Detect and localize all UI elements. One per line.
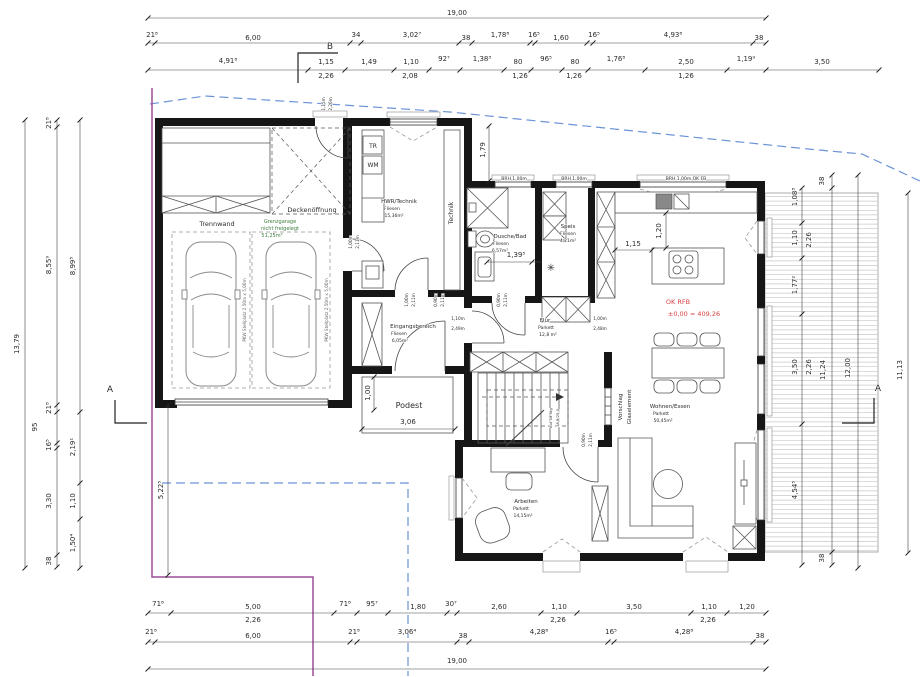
room-label: Podest bbox=[396, 401, 423, 410]
dim-label: 16⁵ bbox=[45, 439, 53, 451]
parking-label: PKW Stellplatz 2,50m x 5,00m bbox=[324, 278, 329, 341]
chair bbox=[677, 333, 697, 346]
dim-label: 95 bbox=[31, 423, 39, 432]
kitchen bbox=[597, 192, 757, 298]
dim-label: 21⁸ bbox=[45, 117, 53, 129]
dim-label: 92⁷ bbox=[438, 55, 450, 63]
dim-label: 1,10 bbox=[701, 603, 717, 611]
opening-label: 2,11m bbox=[355, 235, 360, 248]
dim-label: 1,78⁸ bbox=[491, 31, 510, 39]
window bbox=[758, 430, 764, 520]
wall-segment bbox=[598, 440, 612, 447]
door-step bbox=[543, 561, 580, 572]
armchair bbox=[472, 504, 512, 546]
dim-label: 1,10 bbox=[551, 603, 567, 611]
chair bbox=[654, 333, 674, 346]
dim-label: 71⁸ bbox=[339, 600, 351, 608]
toilet-tank bbox=[468, 231, 476, 247]
room-label: Eingangsbereich bbox=[390, 324, 436, 330]
dim-label: 13,79 bbox=[13, 334, 21, 354]
window-swing bbox=[390, 127, 437, 141]
window-sill bbox=[449, 476, 454, 520]
room-label: Parkett bbox=[513, 506, 529, 512]
room-label: Parkett bbox=[538, 325, 554, 331]
room-label: Fliesen bbox=[493, 241, 509, 247]
dim-label: 80 bbox=[571, 58, 580, 66]
opening-label: 1,00m bbox=[593, 316, 606, 321]
wall-segment bbox=[757, 181, 765, 221]
dim-label: 3,30 bbox=[45, 493, 53, 509]
dim-label: 4,28⁸ bbox=[530, 628, 549, 636]
dim-label: 5,00 bbox=[245, 603, 261, 611]
window bbox=[758, 364, 764, 414]
dim-label: 21⁸ bbox=[145, 628, 157, 636]
office bbox=[472, 448, 608, 546]
room-label: Fliesen bbox=[384, 206, 400, 212]
room-label: 51,25m² bbox=[261, 233, 282, 239]
dim-label: 1,20 bbox=[739, 603, 755, 611]
window bbox=[495, 182, 531, 187]
terrace-door-swing bbox=[683, 537, 728, 552]
room-label: 4,21m² bbox=[560, 238, 576, 244]
room-label: Wohnen/Essen bbox=[650, 404, 691, 410]
coffee-table bbox=[654, 470, 683, 499]
window bbox=[758, 308, 764, 356]
dim-label: 1,79 bbox=[479, 142, 487, 158]
stair-treads bbox=[487, 373, 559, 443]
parking-label: PKW Stellplatz 2,50m x 5,00m bbox=[242, 278, 247, 341]
dim-label: 1,26 bbox=[512, 72, 528, 80]
dim-label: 1,76⁸ bbox=[607, 55, 626, 63]
opening-label: 1,15m bbox=[321, 97, 326, 110]
door-swing-arc bbox=[563, 447, 598, 482]
dim-label: 34 bbox=[352, 31, 361, 39]
dim-label: 3,50 bbox=[814, 58, 830, 66]
room-label: 6,57m² bbox=[492, 248, 508, 254]
desk bbox=[491, 448, 545, 472]
window-sill bbox=[767, 428, 772, 522]
window bbox=[556, 182, 592, 187]
wall-segment bbox=[757, 356, 765, 364]
room-label: 12,8 m² bbox=[539, 332, 557, 338]
dim-label: 16⁵ bbox=[605, 628, 617, 636]
wall-segment bbox=[343, 290, 395, 297]
ceiling-opening-cross bbox=[272, 128, 350, 214]
dim-label: 16⁵ bbox=[528, 31, 540, 39]
dim-label: 2,26 bbox=[550, 616, 566, 624]
room-label: 15,36m² bbox=[384, 213, 403, 219]
opening-label: 2,49m bbox=[451, 326, 464, 331]
floor-plan-page: 19,0021⁸6,00343,02⁷381,78⁸16⁵1,6016⁵4,93… bbox=[0, 0, 920, 677]
dim-label: 2,60 bbox=[491, 603, 507, 611]
door-swing-arc bbox=[395, 258, 428, 290]
dim-label: 38 bbox=[818, 554, 826, 563]
dim-label: 3,50 bbox=[791, 359, 799, 375]
dim-label: 1,10 bbox=[791, 230, 799, 246]
symbol: ✳ bbox=[547, 263, 555, 274]
garage bbox=[162, 128, 350, 388]
wall-segment bbox=[455, 518, 463, 560]
living-dining bbox=[618, 333, 756, 549]
wall-segment bbox=[350, 118, 390, 126]
chair bbox=[677, 380, 697, 393]
room-label: Fliesen bbox=[391, 331, 407, 337]
dim-label: 1,20 bbox=[655, 223, 663, 239]
opening-label: 0,90m bbox=[581, 433, 586, 446]
dim-label: 38 bbox=[462, 34, 471, 42]
room-label: Parkett bbox=[653, 411, 669, 417]
kitchen-sink bbox=[656, 194, 672, 209]
toilet bbox=[476, 231, 494, 247]
shower-drain bbox=[469, 203, 476, 212]
car-mirror bbox=[182, 290, 187, 299]
car-mirror bbox=[262, 290, 267, 299]
dim-label: 38 bbox=[755, 34, 764, 42]
door-step bbox=[686, 561, 728, 572]
chair bbox=[700, 380, 720, 393]
opening-label: 2,26m bbox=[328, 97, 333, 110]
room-label: 6,05m² bbox=[392, 338, 408, 344]
chair bbox=[700, 333, 720, 346]
window-label: BRH 1,00m OK FB bbox=[666, 176, 706, 182]
dim-label: 1,10 bbox=[69, 493, 77, 509]
door-swing-arc bbox=[492, 303, 525, 335]
note: Glaselement bbox=[627, 389, 633, 425]
car-mirror bbox=[235, 290, 240, 299]
dim-label: 3,50 bbox=[626, 603, 642, 611]
room-label: Speis bbox=[561, 224, 576, 230]
window-swing bbox=[745, 221, 757, 254]
dim-label: 1,10 bbox=[403, 58, 419, 66]
room-label: Technik bbox=[448, 201, 455, 225]
opening-label: 0,90m bbox=[433, 293, 438, 306]
dim-label: 1,08³ bbox=[791, 188, 799, 207]
glass-element bbox=[605, 388, 611, 425]
dim-label: 38 bbox=[45, 557, 53, 566]
stair-walkline-arrow bbox=[556, 393, 564, 401]
opening-label: 1,00m bbox=[404, 293, 409, 306]
dim-label: 1,49 bbox=[361, 58, 377, 66]
dim-label: 3,02⁷ bbox=[403, 31, 422, 39]
dim-label: 5,22⁵ bbox=[157, 481, 165, 500]
dim-label: 71⁸ bbox=[152, 600, 164, 608]
wall-segment bbox=[343, 366, 392, 374]
dim-label: 4,93⁸ bbox=[664, 31, 683, 39]
dim-label: 6,00 bbox=[245, 34, 261, 42]
dim-label: 1,00 bbox=[364, 385, 372, 401]
room-label: Flur bbox=[540, 318, 551, 324]
dim-label: 4,91⁸ bbox=[219, 57, 238, 65]
dim-label: 6,00 bbox=[245, 632, 261, 640]
dim-label: 1,26 bbox=[678, 72, 694, 80]
dim-label: 1,39⁵ bbox=[507, 251, 526, 259]
wall-segment bbox=[343, 118, 352, 238]
dim-label: 96⁵ bbox=[540, 55, 552, 63]
dim-label: 19,00 bbox=[447, 9, 467, 17]
section-marker-a-label: A bbox=[875, 384, 882, 394]
dim-label: 2,26 bbox=[245, 616, 261, 624]
room-label: Trennwand bbox=[198, 220, 234, 228]
dim-label: 1,15 bbox=[625, 240, 641, 248]
window bbox=[640, 182, 726, 187]
room-label: Deckenöffnung bbox=[287, 206, 336, 214]
dim-label: 1,15 bbox=[318, 58, 334, 66]
door-swing-arc bbox=[472, 311, 504, 343]
dim-label: 2,26 bbox=[805, 359, 813, 375]
wall-segment bbox=[757, 254, 765, 308]
setback-line bbox=[162, 483, 408, 676]
wall-segment bbox=[464, 118, 472, 188]
dim-label: 38 bbox=[756, 632, 765, 640]
window bbox=[758, 221, 764, 254]
window-sill bbox=[767, 306, 772, 416]
fixtures bbox=[362, 130, 590, 366]
stair-label: Auf 18 Stg bbox=[548, 407, 553, 427]
wall-segment bbox=[592, 181, 640, 188]
dim-label: 4,54⁵ bbox=[791, 481, 799, 500]
wall-segment bbox=[455, 553, 543, 561]
room-label: Arbeiten bbox=[514, 499, 538, 505]
dim-label: 2,08 bbox=[402, 72, 418, 80]
window-label: BRH 1,00m bbox=[501, 176, 526, 182]
wall-segment bbox=[535, 188, 542, 296]
car-body bbox=[186, 242, 236, 386]
dim-label: 2,26 bbox=[700, 616, 716, 624]
tv-mount bbox=[741, 480, 747, 486]
dim-label: 1,26 bbox=[566, 72, 582, 80]
car bbox=[182, 242, 240, 386]
dim-label: 21⁸ bbox=[45, 402, 53, 414]
dim-label: 16⁵ bbox=[588, 31, 600, 39]
wall-segment bbox=[604, 352, 612, 388]
wall-segment bbox=[604, 425, 612, 440]
opening-label: 0,90m bbox=[496, 293, 501, 306]
stair-label: 18,8/25,0 bbox=[555, 408, 560, 427]
opening-label: 1,10m bbox=[451, 316, 464, 321]
opening-label: 1,00m bbox=[348, 235, 353, 248]
opening-label: 2,11m bbox=[440, 293, 445, 306]
dim-label: 1,38³ bbox=[473, 55, 492, 63]
level-note: ±0,00 = 409,26 bbox=[668, 310, 720, 318]
opening-label: 2,11m bbox=[503, 293, 508, 306]
dim-label: 80 bbox=[514, 58, 523, 66]
dim-label: 1,50⁴ bbox=[69, 534, 77, 553]
dim-label: 3,06 bbox=[400, 418, 416, 426]
dim-label: 30⁷ bbox=[445, 600, 457, 608]
window-label: BRH 1,00m bbox=[561, 176, 586, 182]
dining-table bbox=[652, 348, 724, 378]
room-label: HWR/Technik bbox=[381, 199, 418, 205]
wall-segment bbox=[155, 118, 315, 126]
room-label: 50,45m² bbox=[653, 418, 672, 424]
dim-label: 3,06⁴ bbox=[398, 628, 417, 636]
window-sill bbox=[767, 218, 772, 257]
wall-segment bbox=[455, 440, 560, 447]
dim-label: 19,00 bbox=[447, 657, 467, 665]
room-label: Fliesen bbox=[560, 231, 576, 237]
note: Vorschlag bbox=[618, 394, 624, 421]
dim-label: 8,99⁵ bbox=[69, 257, 77, 276]
dim-label: 1,77² bbox=[791, 276, 799, 295]
car-mirror bbox=[315, 290, 320, 299]
dim-label: 21⁸ bbox=[146, 31, 158, 39]
dim-label: 1,60 bbox=[553, 34, 569, 42]
room-label: nicht freigelegt bbox=[261, 226, 299, 232]
room-label: Dusche/Bad bbox=[494, 234, 527, 240]
opening-label: 2,11m bbox=[588, 433, 593, 446]
opening-label: 2,11m bbox=[411, 293, 416, 306]
wall-segment bbox=[531, 181, 556, 188]
dim-label: 2,26 bbox=[318, 72, 334, 80]
dim-label: 1,80 bbox=[410, 603, 426, 611]
dim-label: 1,19⁹ bbox=[737, 55, 756, 63]
dim-label: 11,24 bbox=[819, 359, 827, 380]
hwr-washbasin bbox=[362, 261, 383, 288]
dim-label: 8,55⁹ bbox=[45, 256, 53, 275]
dim-label: 12,00 bbox=[844, 358, 852, 378]
section-marker-a-label: A bbox=[107, 385, 114, 395]
dim-label: 11,13 bbox=[896, 360, 904, 380]
dim-label: 2,19¹ bbox=[69, 438, 77, 457]
dim-label: 38 bbox=[818, 177, 826, 186]
dim-label: 95⁷ bbox=[366, 600, 378, 608]
window-sill bbox=[387, 112, 440, 117]
wall-segment bbox=[588, 188, 595, 303]
room-label: 14,15m² bbox=[513, 513, 532, 519]
room-label: Grenzgarage bbox=[264, 219, 296, 225]
terrace-door-swing bbox=[543, 539, 580, 552]
level-note: OK RFB bbox=[666, 298, 690, 306]
car bbox=[262, 242, 320, 386]
section-marker-b-label: B bbox=[327, 42, 333, 52]
wall-segment bbox=[464, 296, 492, 303]
door-step bbox=[313, 111, 347, 117]
fixture-label: TR bbox=[368, 143, 377, 150]
wall-segment bbox=[464, 181, 495, 188]
wall-segment bbox=[757, 414, 765, 430]
dim-label: 21⁸ bbox=[348, 628, 360, 636]
dim-label: 2,26 bbox=[805, 232, 813, 248]
wall-segment bbox=[580, 553, 683, 561]
window bbox=[456, 478, 462, 518]
fixture-label: WM bbox=[367, 162, 378, 169]
chair bbox=[654, 380, 674, 393]
car-body bbox=[266, 242, 316, 386]
dim-label: 2,50 bbox=[678, 58, 694, 66]
dim-label: 4,28⁸ bbox=[675, 628, 694, 636]
section-line-a-left bbox=[115, 400, 147, 423]
wall-segment bbox=[328, 400, 352, 408]
office-chair bbox=[506, 473, 532, 490]
floor-plan-canvas: 19,0021⁸6,00343,02⁷381,78⁸16⁵1,6016⁵4,93… bbox=[0, 0, 920, 677]
opening-label: 2,48m bbox=[593, 326, 606, 331]
window-swing bbox=[462, 478, 477, 518]
wall-segment bbox=[728, 553, 765, 561]
dim-label: 38 bbox=[459, 632, 468, 640]
